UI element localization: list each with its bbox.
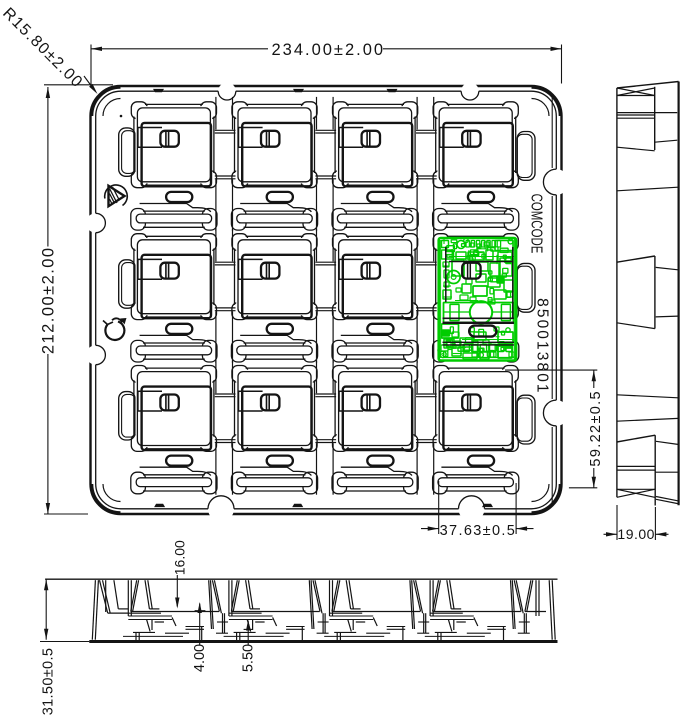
- svg-text:59.22±0.5: 59.22±0.5: [588, 390, 604, 467]
- svg-text:31.50±0.5: 31.50±0.5: [41, 648, 57, 716]
- svg-text:234.00±2.00: 234.00±2.00: [271, 41, 385, 59]
- svg-text:COMCODE: COMCODE: [528, 194, 545, 254]
- svg-text:212.00±2.00: 212.00±2.00: [40, 247, 58, 355]
- svg-text:5.50: 5.50: [241, 644, 257, 672]
- svg-text:4.00: 4.00: [192, 644, 208, 672]
- svg-text:37.63±0.5: 37.63±0.5: [440, 523, 517, 539]
- svg-text:16.00: 16.00: [171, 540, 187, 575]
- svg-text:19.00: 19.00: [617, 526, 655, 542]
- svg-text:850013801: 850013801: [534, 298, 551, 394]
